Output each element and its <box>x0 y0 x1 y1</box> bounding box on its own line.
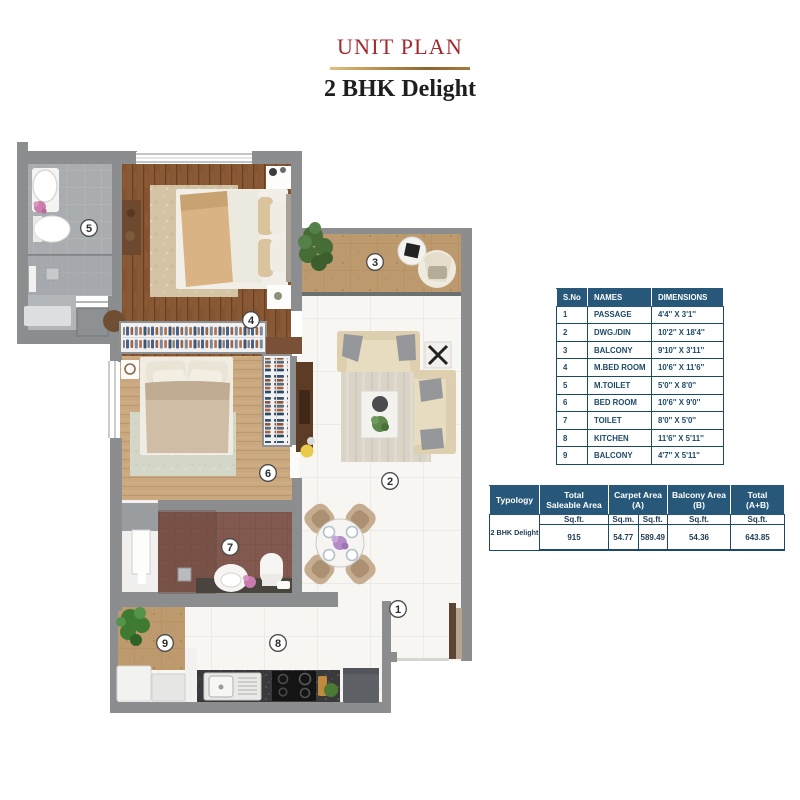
svg-text:2: 2 <box>387 476 393 488</box>
svg-text:8: 8 <box>275 638 281 650</box>
svg-text:5: 5 <box>86 223 92 235</box>
svg-text:9: 9 <box>162 638 168 650</box>
svg-text:1: 1 <box>395 604 401 616</box>
svg-text:7: 7 <box>227 542 233 554</box>
svg-text:4: 4 <box>248 315 255 327</box>
svg-text:6: 6 <box>265 468 271 480</box>
svg-text:3: 3 <box>372 257 378 269</box>
